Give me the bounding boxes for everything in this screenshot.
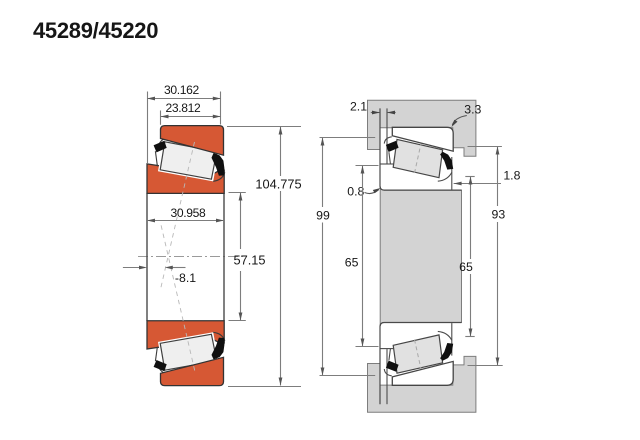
svg-text:23.812: 23.812 <box>166 101 202 115</box>
svg-text:1.8: 1.8 <box>503 169 520 183</box>
svg-text:99: 99 <box>316 209 330 223</box>
svg-text:-8.1: -8.1 <box>175 271 196 285</box>
svg-text:104.775: 104.775 <box>255 177 301 192</box>
svg-text:45289/45220: 45289/45220 <box>33 18 158 43</box>
svg-text:30.958: 30.958 <box>171 206 207 220</box>
svg-text:30.162: 30.162 <box>164 83 200 97</box>
svg-text:0.8: 0.8 <box>347 185 364 199</box>
svg-text:57.15: 57.15 <box>233 253 265 268</box>
svg-text:3.3: 3.3 <box>464 103 481 117</box>
svg-text:93: 93 <box>492 208 506 222</box>
svg-text:65: 65 <box>459 260 473 274</box>
svg-text:2.1: 2.1 <box>350 100 367 114</box>
svg-text:65: 65 <box>345 255 359 269</box>
